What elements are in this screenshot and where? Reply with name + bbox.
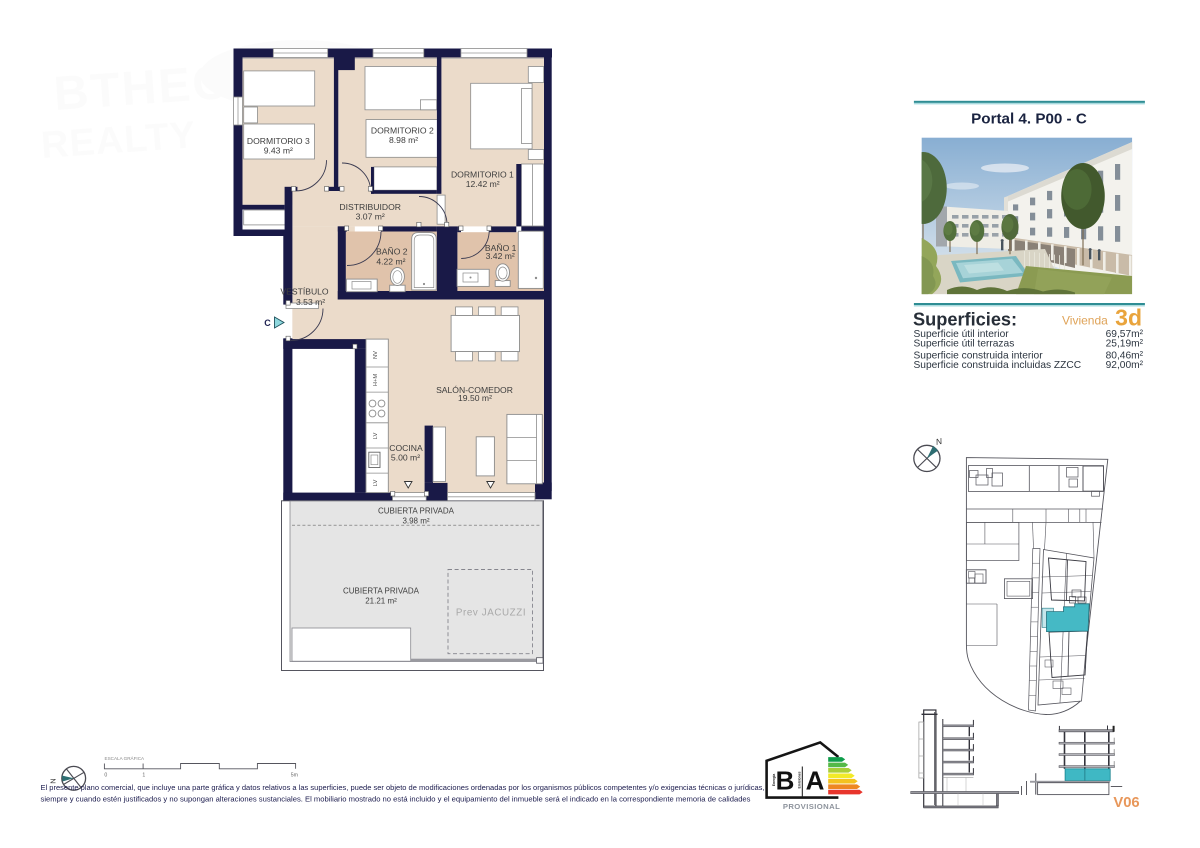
svg-text:21.21 m²: 21.21 m²: [365, 596, 397, 605]
svg-text:PROVISIONAL: PROVISIONAL: [783, 802, 840, 811]
svg-text:5.00 m²: 5.00 m²: [391, 452, 420, 462]
svg-text:25,19m²: 25,19m²: [1106, 339, 1144, 350]
svg-text:H+M: H+M: [373, 374, 379, 387]
svg-text:Portal 4. P00 - C: Portal 4. P00 - C: [971, 111, 1087, 128]
svg-text:B: B: [776, 766, 795, 796]
svg-text:Vivienda: Vivienda: [1062, 314, 1108, 328]
svg-text:NV: NV: [373, 351, 379, 359]
svg-text:3d: 3d: [1115, 305, 1142, 331]
svg-text:CUBIERTA PRIVADA: CUBIERTA PRIVADA: [343, 587, 420, 596]
svg-text:El presente plano comercial, q: El presente plano comercial, que incluye…: [41, 783, 765, 792]
svg-text:19.50 m²: 19.50 m²: [458, 393, 492, 403]
svg-text:Superficies:: Superficies:: [913, 310, 1017, 330]
svg-text:LV: LV: [373, 433, 379, 440]
svg-text:Prev JACUZZI: Prev JACUZZI: [456, 608, 526, 619]
svg-text:DORMITORIO 2: DORMITORIO 2: [371, 126, 434, 136]
svg-text:0: 0: [104, 772, 107, 778]
svg-text:DISTRIBUIDOR: DISTRIBUIDOR: [339, 202, 401, 212]
svg-text:Energía: Energía: [772, 774, 776, 787]
svg-text:CUBIERTA PRIVADA: CUBIERTA PRIVADA: [378, 506, 455, 515]
svg-text:BAÑO 2: BAÑO 2: [376, 247, 408, 257]
svg-text:92,00m²: 92,00m²: [1106, 360, 1144, 371]
svg-text:DORMITORIO 3: DORMITORIO 3: [247, 136, 310, 146]
svg-text:3.42 m²: 3.42 m²: [486, 251, 515, 261]
svg-text:9.43 m²: 9.43 m²: [264, 146, 293, 156]
svg-text:4.22 m²: 4.22 m²: [376, 256, 405, 266]
svg-text:3.07 m²: 3.07 m²: [356, 212, 385, 222]
svg-text:siempre y cuando estén justifi: siempre y cuando estén justificados y no…: [41, 794, 751, 803]
svg-text:VESTÍBULO: VESTÍBULO: [280, 287, 329, 297]
svg-text:8.98 m²: 8.98 m²: [389, 135, 418, 145]
svg-text:Superficie construida incluida: Superficie construida incluidas ZZCC: [914, 360, 1082, 371]
svg-text:COCINA: COCINA: [389, 443, 423, 453]
svg-text:3.53 m²: 3.53 m²: [296, 297, 325, 307]
svg-text:5m: 5m: [291, 772, 298, 778]
svg-text:ESCALA GRÁFICA: ESCALA GRÁFICA: [105, 755, 146, 761]
svg-text:LV: LV: [373, 480, 379, 487]
svg-text:Emisiones: Emisiones: [798, 771, 802, 788]
svg-text:3.98 m²: 3.98 m²: [402, 516, 429, 525]
svg-text:1: 1: [142, 772, 145, 778]
svg-text:V06: V06: [1113, 795, 1139, 811]
svg-text:12.42 m²: 12.42 m²: [466, 179, 500, 189]
svg-text:C: C: [264, 318, 271, 328]
svg-text:A: A: [806, 766, 825, 796]
svg-text:Superficie útil terrazas: Superficie útil terrazas: [914, 339, 1015, 350]
